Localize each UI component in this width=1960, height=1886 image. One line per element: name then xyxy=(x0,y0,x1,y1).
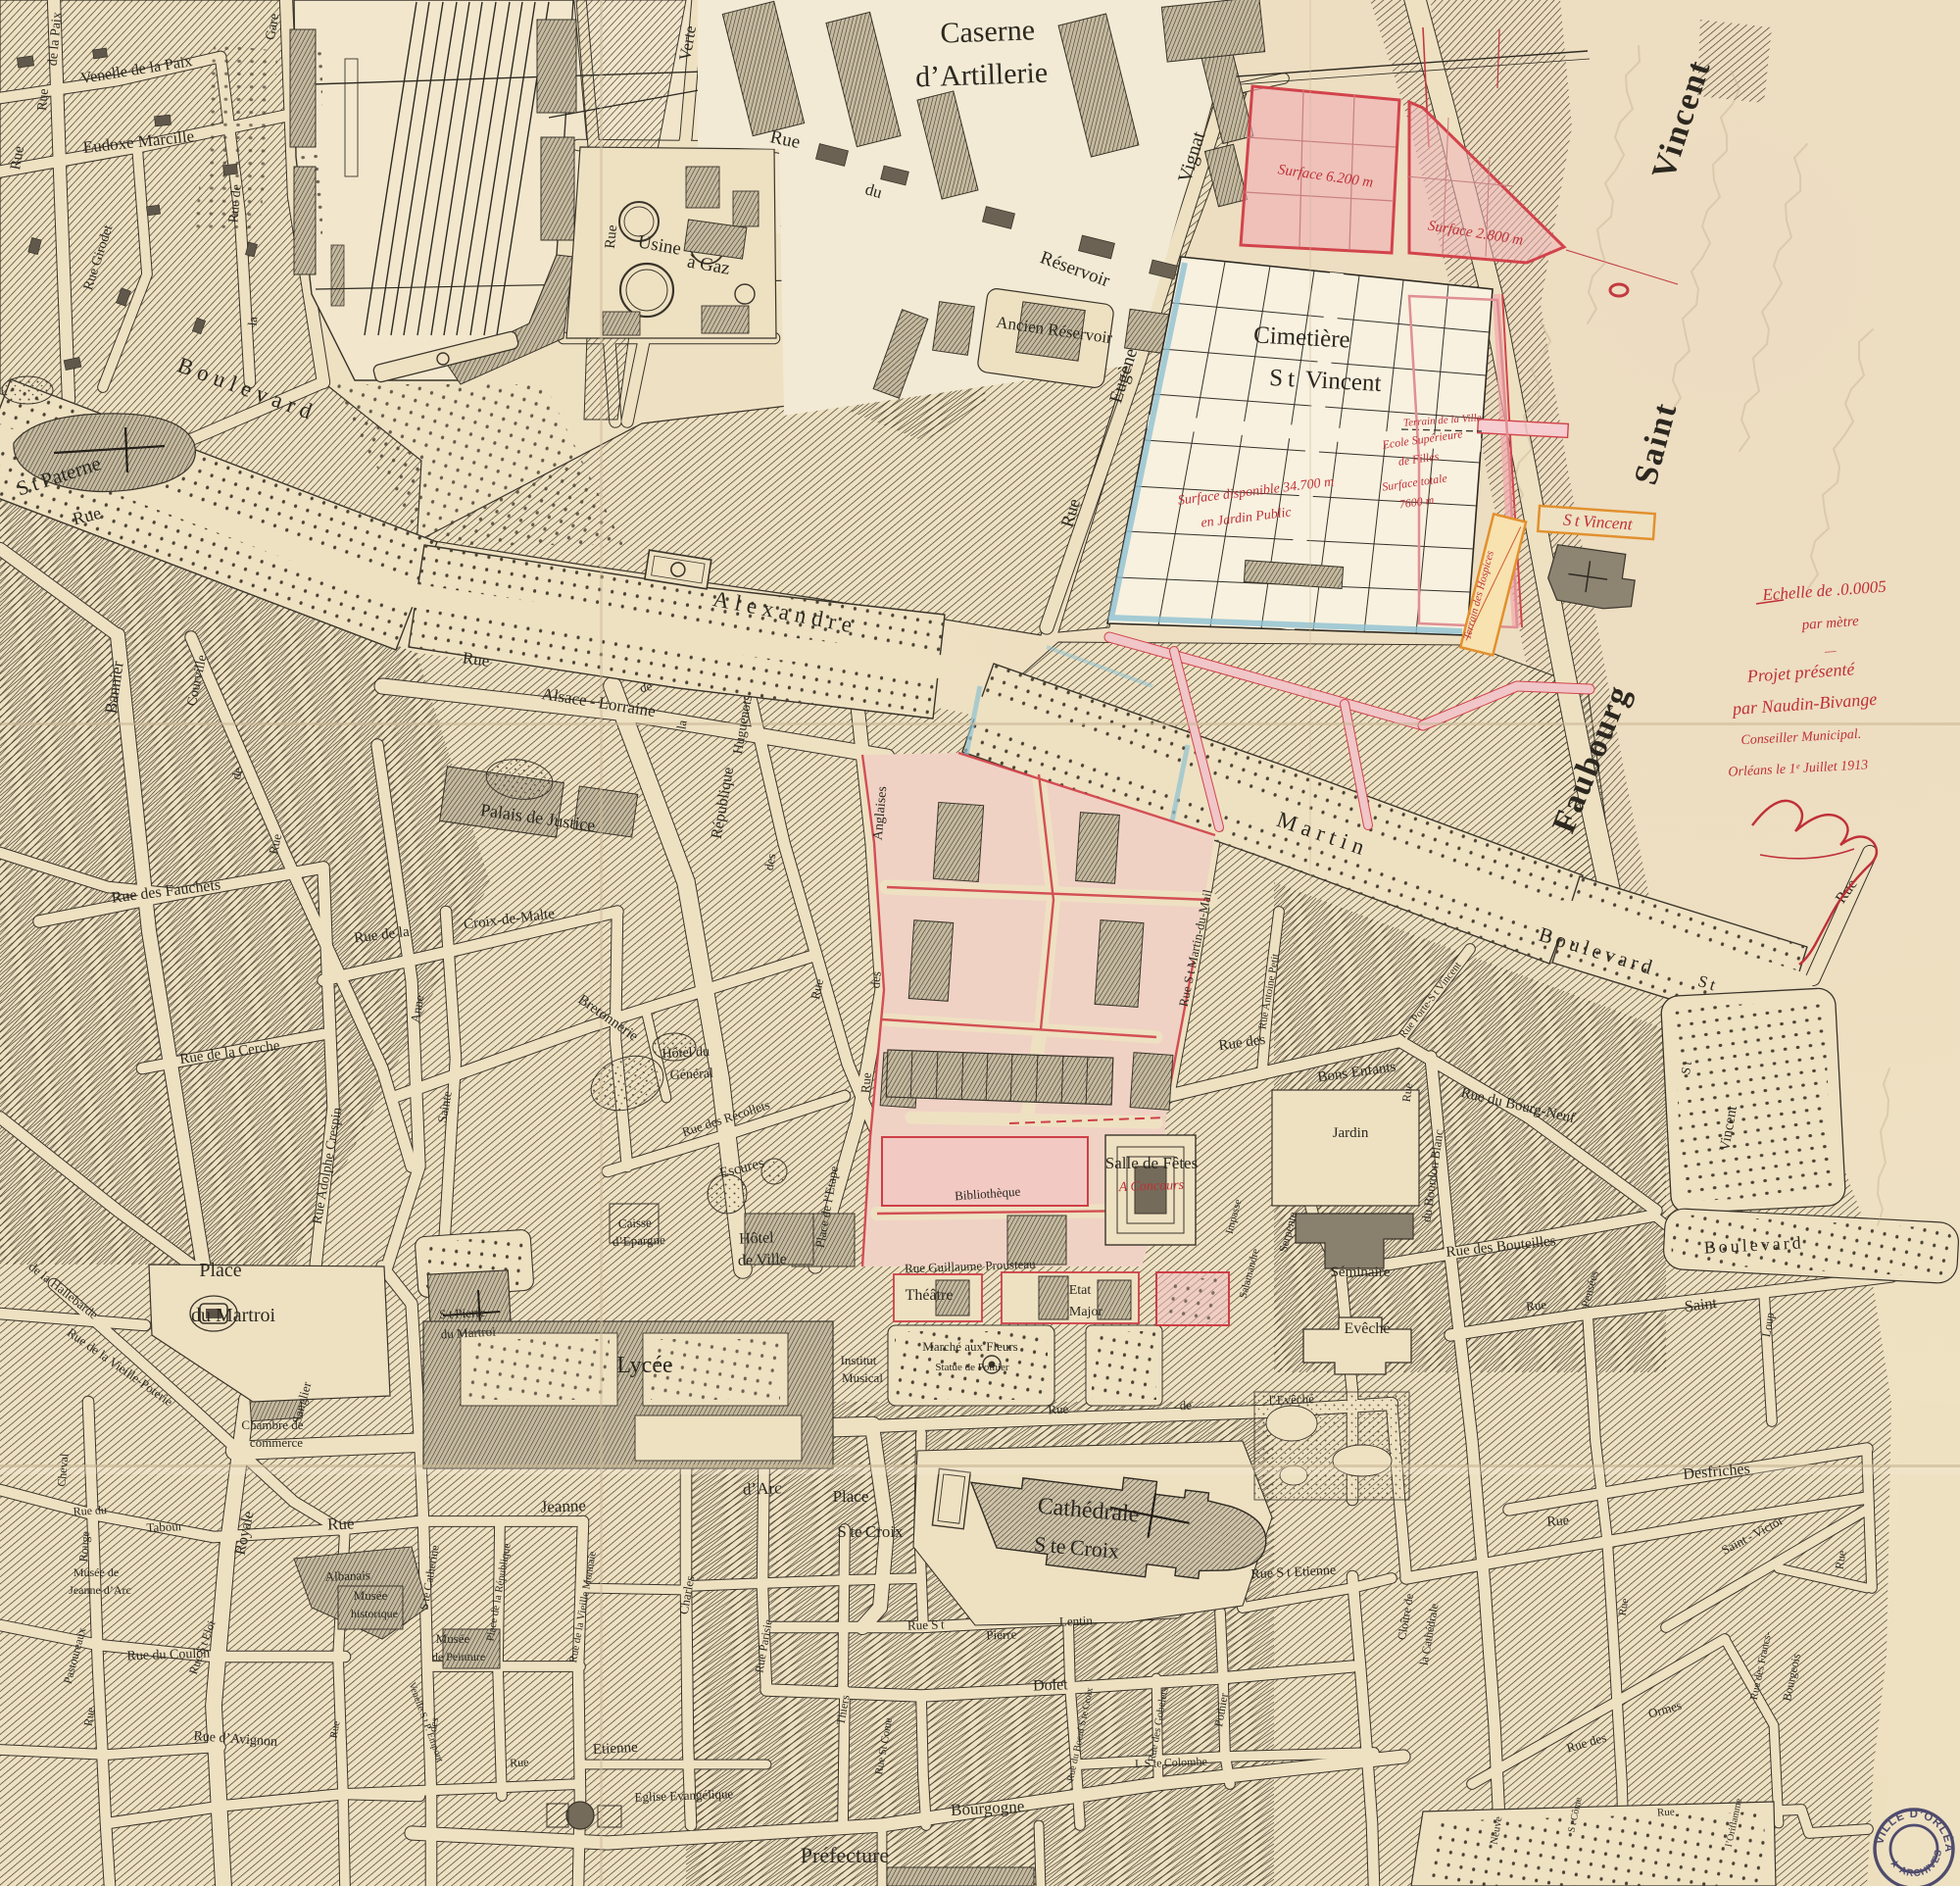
svg-text:Rue: Rue xyxy=(1525,1297,1547,1314)
svg-text:Cimetière: Cimetière xyxy=(1252,322,1350,353)
svg-text:Jeanne: Jeanne xyxy=(540,1496,586,1516)
svg-text:Préfecture: Préfecture xyxy=(801,1843,889,1867)
svg-text:Bourgogne: Bourgogne xyxy=(951,1797,1025,1819)
svg-text:Lycée: Lycée xyxy=(616,1353,672,1378)
svg-text:Hôtel: Hôtel xyxy=(739,1229,775,1247)
svg-text:S te Croix: S te Croix xyxy=(837,1522,904,1541)
svg-text:Institut: Institut xyxy=(841,1353,877,1367)
svg-text:Dolet: Dolet xyxy=(1033,1676,1069,1694)
svg-text:A Concours: A Concours xyxy=(1118,1178,1185,1195)
svg-text:Rue: Rue xyxy=(327,1514,355,1534)
svg-text:Evêché: Evêché xyxy=(1344,1320,1390,1337)
svg-text:Caisse: Caisse xyxy=(618,1215,653,1230)
svg-text:Musical: Musical xyxy=(842,1370,883,1385)
svg-text:Major: Major xyxy=(1069,1305,1103,1319)
svg-text:de Peinture: de Peinture xyxy=(432,1650,485,1663)
svg-text:Marché aux Fleurs: Marché aux Fleurs xyxy=(922,1339,1017,1354)
svg-text:Musée: Musée xyxy=(354,1588,388,1603)
svg-text:Caserne: Caserne xyxy=(940,14,1036,49)
svg-text:Rue: Rue xyxy=(462,648,491,670)
svg-text:—: — xyxy=(1823,643,1837,659)
svg-text:Statue de Pothier: Statue de Pothier xyxy=(935,1362,1008,1373)
svg-text:Etat: Etat xyxy=(1069,1283,1092,1298)
svg-text:Rue S t: Rue S t xyxy=(907,1616,946,1632)
svg-text:Musée: Musée xyxy=(436,1631,470,1646)
svg-text:des: des xyxy=(867,970,883,989)
svg-text:la: la xyxy=(245,316,261,326)
svg-text:Salle de Fêtes: Salle de Fêtes xyxy=(1105,1154,1198,1172)
svg-text:Rue: Rue xyxy=(857,1071,874,1093)
svg-text:du Martroi: du Martroi xyxy=(440,1324,496,1342)
svg-text:Rue: Rue xyxy=(35,88,52,112)
svg-text:Jardin: Jardin xyxy=(1333,1125,1369,1141)
svg-text:Rue: Rue xyxy=(1657,1807,1675,1819)
svg-text:Jeanne d’Arc: Jeanne d’Arc xyxy=(69,1583,131,1597)
svg-text:Rue: Rue xyxy=(510,1756,529,1770)
svg-text:Pierre: Pierre xyxy=(986,1626,1017,1642)
svg-text:Général: Général xyxy=(669,1067,713,1083)
svg-text:S t Pierre: S t Pierre xyxy=(439,1305,486,1321)
svg-text:l’Evêché: l’Evêché xyxy=(1268,1391,1314,1408)
svg-text:de Ville: de Ville xyxy=(738,1251,787,1269)
svg-text:Rue: Rue xyxy=(1546,1514,1570,1530)
svg-text:Place: Place xyxy=(199,1260,241,1281)
svg-text:Albanais: Albanais xyxy=(324,1567,370,1584)
svg-text:Rue: Rue xyxy=(1048,1402,1069,1417)
svg-text:du Martroi: du Martroi xyxy=(191,1305,276,1326)
svg-text:Théâtre: Théâtre xyxy=(906,1287,954,1304)
svg-text:Lentin: Lentin xyxy=(1059,1613,1094,1628)
svg-text:de: de xyxy=(1179,1398,1192,1413)
svg-text:Rue du: Rue du xyxy=(73,1503,107,1518)
svg-text:d’Epargne: d’Epargne xyxy=(612,1232,666,1249)
svg-text:Rue: Rue xyxy=(603,223,620,249)
svg-text:Musée de: Musée de xyxy=(73,1565,119,1579)
svg-text:des: des xyxy=(761,852,779,871)
svg-text:commerce: commerce xyxy=(250,1435,303,1450)
svg-text:d’Artillerie: d’Artillerie xyxy=(915,57,1049,94)
svg-text:Hôtel du: Hôtel du xyxy=(661,1045,710,1063)
svg-text:historique: historique xyxy=(351,1607,398,1620)
svg-text:Rouge: Rouge xyxy=(76,1530,93,1562)
svg-text:Etienne: Etienne xyxy=(592,1740,638,1758)
svg-text:Place: Place xyxy=(833,1487,869,1506)
svg-text:d’Arc: d’Arc xyxy=(743,1478,783,1498)
svg-text:Séminaire: Séminaire xyxy=(1331,1265,1391,1280)
svg-text:L S te Colombe: L S te Colombe xyxy=(1135,1755,1207,1771)
svg-text:Rue: Rue xyxy=(1399,1082,1416,1103)
svg-text:Tabour: Tabour xyxy=(146,1518,183,1535)
